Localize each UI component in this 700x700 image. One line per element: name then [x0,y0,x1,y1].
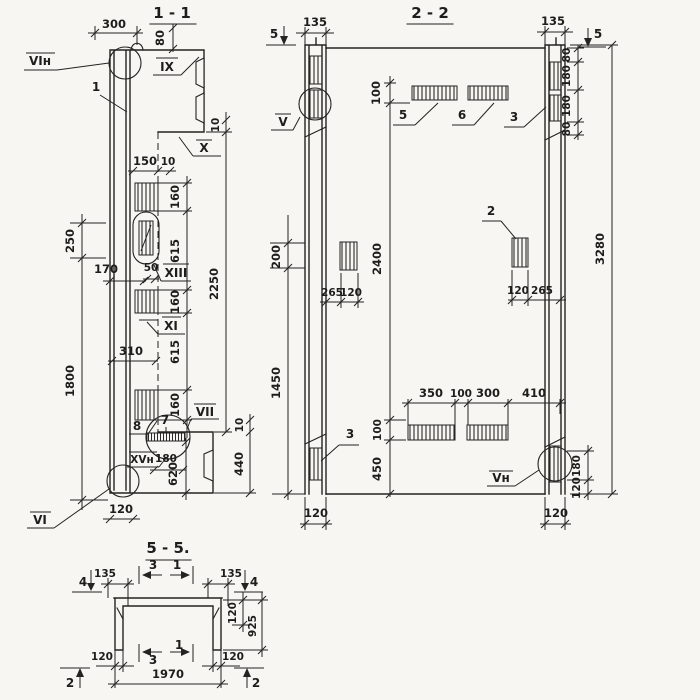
callout-7: 7 [161,413,169,427]
dim-120-bot-right: 120 [544,506,568,520]
dim-150-10-lines [128,167,176,175]
drawing-sheet: 1 - 1 300 80 IX X 10 [0,0,700,700]
cut-3-bot: 3 [149,653,157,667]
dim-80-lines [169,24,177,53]
marker-5-right: 5 [594,27,602,41]
dim-80: 80 [153,30,167,46]
callout-vii: VII [196,405,214,419]
marker-2-left-arrow [76,668,84,677]
dim-180b: 180 [561,95,573,117]
marker-2-right: 2 [252,676,260,690]
dim-620-lines [182,438,190,500]
dim-160b: 160 [168,290,182,314]
dim-180-right: 180 [571,455,583,477]
callout-xv: XVн [130,454,153,466]
dim-300: 300 [102,17,126,31]
dim-3280: 3280 [593,233,607,265]
callout-5: 5 [399,108,407,122]
dim-120-flange: 120 [227,602,239,624]
dim-310: 310 [119,344,143,358]
section-5-5-title: 5 - 5. [146,539,189,557]
dim-615a: 615 [168,239,182,263]
dim-170-50-lines [103,275,159,285]
dim-135-right: 135 [541,14,565,28]
marker-5-right-arrow [584,38,592,47]
dim-265-right: 265 [531,285,553,297]
marker-4-left-arrow [87,583,95,591]
callout-v: V [278,115,288,129]
hatched-plate [549,446,561,482]
callout-xi: XI [164,319,178,333]
hatched-plate [309,56,322,84]
dim-80b: 80 [561,122,573,137]
callout-vi-bot: VI [33,513,47,527]
dim-100-top: 100 [369,81,383,105]
dim-615b: 615 [168,340,182,364]
dim-135-right-lines [537,26,573,45]
dim-120-br: 120 [222,651,244,663]
callout-x: X [199,141,209,155]
dim-925: 925 [247,615,259,637]
embedded-plate [196,58,204,88]
dim-120-bot-left: 120 [304,506,328,520]
dim-1450: 1450 [269,367,283,399]
hatched-plate [467,425,508,440]
hatched-plate [309,448,322,480]
dim-180a: 180 [561,65,573,87]
dim-135-left: 135 [94,568,116,580]
callout-ix: IX [160,60,174,74]
section-1-1-title: 1 - 1 [153,4,191,22]
section-2-2: 2 - 2 5 135 135 5 100 [266,4,618,530]
callout-3-bot: 3 [346,427,354,441]
corner-bevels [117,608,219,619]
callout-vn: Vн [492,471,510,485]
dim-120-left: 120 [340,287,362,299]
dim-170: 170 [94,262,118,276]
dim-80a: 80 [561,48,573,63]
dim-250: 250 [63,229,77,253]
embedded-plate [196,93,204,123]
embedded-plate [204,450,213,481]
dim-10-top: 10 [210,118,222,133]
marker-2-left: 2 [66,676,74,690]
dim-2400: 2400 [370,243,384,275]
dim-120-right-v: 120 [571,477,583,499]
section-2-2-title: 2 - 2 [411,4,449,22]
hatched-plate [309,90,322,118]
cut-1-top-arrow [181,571,190,579]
dim-135-right: 135 [220,568,242,580]
dim-2250: 2250 [207,268,221,300]
dim-250-1800-lines [70,214,108,510]
dim-440: 440 [232,452,246,476]
dim-135-left: 135 [303,15,327,29]
marker-4-left: 4 [79,575,87,589]
hatched-plate [340,242,357,270]
dim-1970: 1970 [152,667,184,681]
dim-150: 150 [133,154,157,168]
dim-100-mid: 100 [450,388,472,400]
dim-120-right: 120 [507,285,529,297]
callout-xiii: XIII [165,266,188,280]
dim-135-left-lines [101,578,134,606]
structural-drawing: 1 - 1 300 80 IX X 10 [0,0,700,700]
cut-3-top-arrow [142,571,151,579]
dim-100-bot: 100 [372,419,384,441]
dim-620: 620 [166,462,180,486]
dim-350: 350 [419,386,443,400]
dim-3280-lines [570,41,618,498]
hatched-plate-2 [512,238,528,267]
detail-circle-vi-bottom [107,465,139,497]
cut-1-top: 1 [173,558,181,572]
marker-2-right-arrow [243,668,251,677]
dim-120-lines [103,515,140,523]
channel-outline [114,598,222,650]
dim-100-top-lines [384,76,410,110]
dim-160c: 160 [168,393,182,417]
dim-135-right-lines [202,578,235,606]
callout-2-lines [482,221,516,239]
dim-50: 50 [144,262,159,274]
hatched-plate [549,95,561,121]
mid-chain-lines [384,110,406,498]
cut-1-bot: 1 [175,638,183,652]
marker-5-left-arrow [280,36,288,45]
dim-10-bot: 10 [234,418,246,433]
dim-135-left-lines [296,27,334,45]
dim-1800: 1800 [63,365,77,397]
marker-2-left-lines [60,668,90,688]
dim-410: 410 [522,386,546,400]
callout-6: 6 [458,108,466,122]
cut-3-top: 3 [149,558,157,572]
hatched-plate [135,183,158,211]
hatched-plate [408,425,455,440]
callout-1: 1 [92,80,100,94]
bottom-chain-lines [402,399,566,425]
dim-300: 300 [476,386,500,400]
hatched-plate [135,290,158,313]
callout-vi-top: VIн [29,54,51,68]
dim-120: 120 [109,502,133,516]
dim-160a: 160 [168,185,182,209]
callout-2: 2 [487,204,495,218]
hatched-plate [135,390,158,420]
dim-120-bl: 120 [91,651,113,663]
dim-450: 450 [370,457,384,481]
marker-5-left: 5 [270,27,278,41]
dim-180: 180 [155,453,177,465]
callout-8: 8 [133,419,141,433]
hatched-plate [549,62,561,90]
hatched-plate-5 [412,86,457,100]
hatched-plate-6 [468,86,508,100]
dim-310-lines [108,357,160,365]
dim-10: 10 [161,156,176,168]
section-1-1: 1 - 1 300 80 IX X 10 [24,4,256,528]
dim-200: 200 [269,245,283,269]
marker-4-right: 4 [250,575,258,589]
section-5-5: 5 - 5. 4 4 135 135 3 1 3 1 120 925 120 [60,539,268,690]
weld-seam [147,433,185,441]
callout-xi-lines [139,317,185,334]
callout-3-top: 3 [510,110,518,124]
marker-4-right-arrow [241,583,249,591]
